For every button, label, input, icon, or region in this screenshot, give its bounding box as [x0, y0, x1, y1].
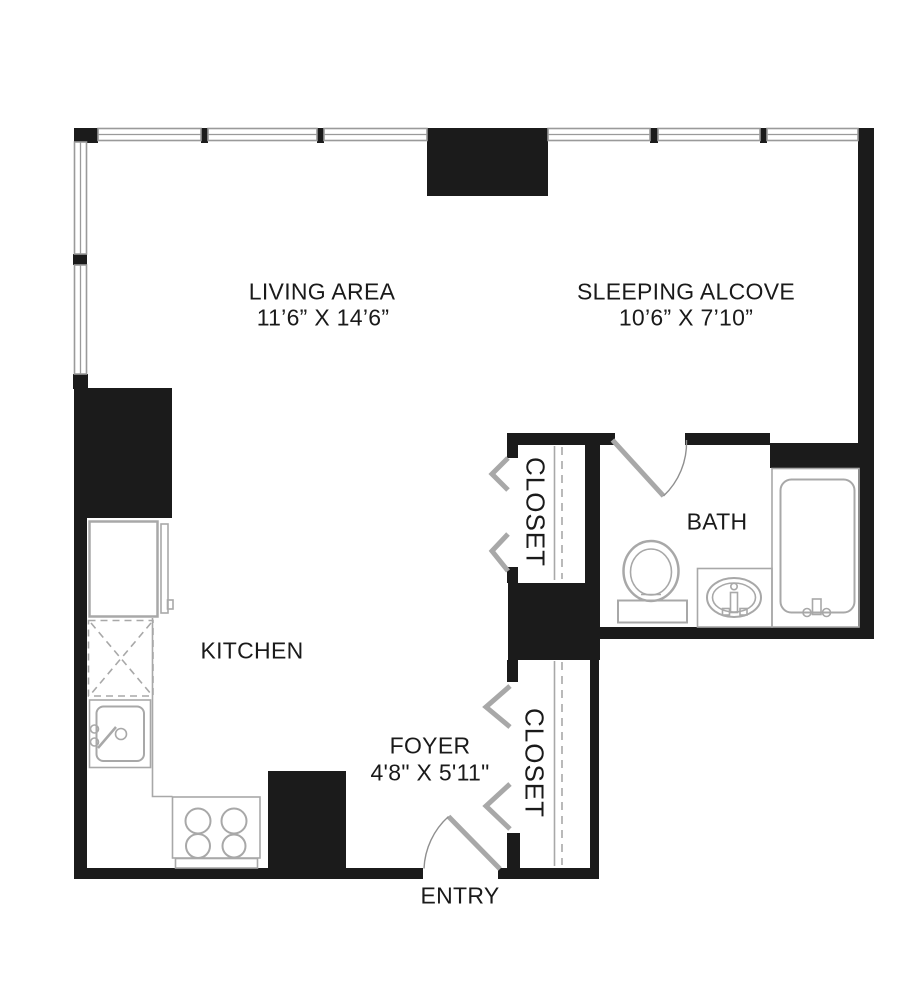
wall-closet-lower-right: [590, 660, 599, 868]
kitchen-fixtures: [89, 522, 261, 869]
room-dims-living: 11’6” X 14’6”: [257, 305, 390, 332]
bath-door: [613, 440, 687, 496]
wall-left-corner: [73, 374, 88, 389]
wall-entry-jamb: [507, 833, 520, 868]
wall-left-lower: [74, 518, 87, 879]
bath-fixtures: [618, 469, 859, 628]
room-label-closet-lower: CLOSET: [519, 708, 550, 818]
toilet: [618, 541, 687, 623]
wall-top-left-corner: [74, 128, 98, 143]
column-between-closets: [508, 583, 600, 660]
wall-closet-lower-stub-top: [507, 660, 518, 682]
room-label-closet-upper: CLOSET: [520, 457, 551, 567]
room-label-bath: BATH: [687, 509, 748, 536]
burner: [186, 809, 211, 834]
vanity-sink: [698, 569, 773, 628]
wall-bottom-left: [74, 868, 423, 879]
floor-plan-drawing: [0, 0, 913, 1000]
door-swing-arc: [424, 817, 449, 869]
window-mullion: [760, 128, 767, 143]
entry-label: ENTRY: [420, 883, 499, 910]
wall-tub-head: [770, 443, 861, 468]
burner: [222, 809, 247, 834]
kitchen-sink: [90, 700, 151, 768]
door-swing-arc: [664, 440, 687, 496]
column-top: [427, 128, 548, 196]
room-dims-foyer: 4'8" X 5'11": [370, 760, 489, 787]
column-foyer: [268, 771, 346, 868]
counter-edge: [153, 618, 173, 797]
dashed-cabinet: [89, 621, 154, 697]
room-dims-sleeping: 10’6” X 7’10”: [619, 305, 753, 332]
wall-bath-top-a: [508, 433, 615, 445]
wall-closet-bath-divider: [585, 445, 600, 583]
closet-lower-bifold-doors: [486, 686, 510, 829]
range: [173, 797, 261, 868]
burner: [223, 835, 246, 858]
column-kitchen: [74, 388, 172, 518]
room-label-sleeping: SLEEPING ALCOVE: [577, 279, 795, 306]
floor-plan: LIVING AREA 11’6” X 14’6” SLEEPING ALCOV…: [0, 0, 913, 1000]
wall-bath-top-b: [685, 433, 770, 445]
window-mullion: [201, 128, 208, 143]
wall-bottom-right: [498, 868, 599, 879]
wall-right: [858, 128, 874, 639]
closet-upper-bifold-doors: [492, 458, 508, 571]
window-mullion-left: [73, 254, 87, 265]
wall-closet-upper-stub-top: [507, 433, 518, 458]
entry-door: [424, 817, 500, 870]
burner: [186, 834, 210, 858]
room-label-kitchen: KITCHEN: [200, 638, 303, 665]
room-label-foyer: FOYER: [390, 733, 471, 760]
window-mullion: [317, 128, 324, 143]
window-mullion: [650, 128, 658, 143]
refrigerator: [90, 522, 174, 617]
wall-bath-bottom: [598, 627, 874, 639]
room-label-living: LIVING AREA: [249, 279, 395, 306]
bathtub: [772, 469, 859, 628]
